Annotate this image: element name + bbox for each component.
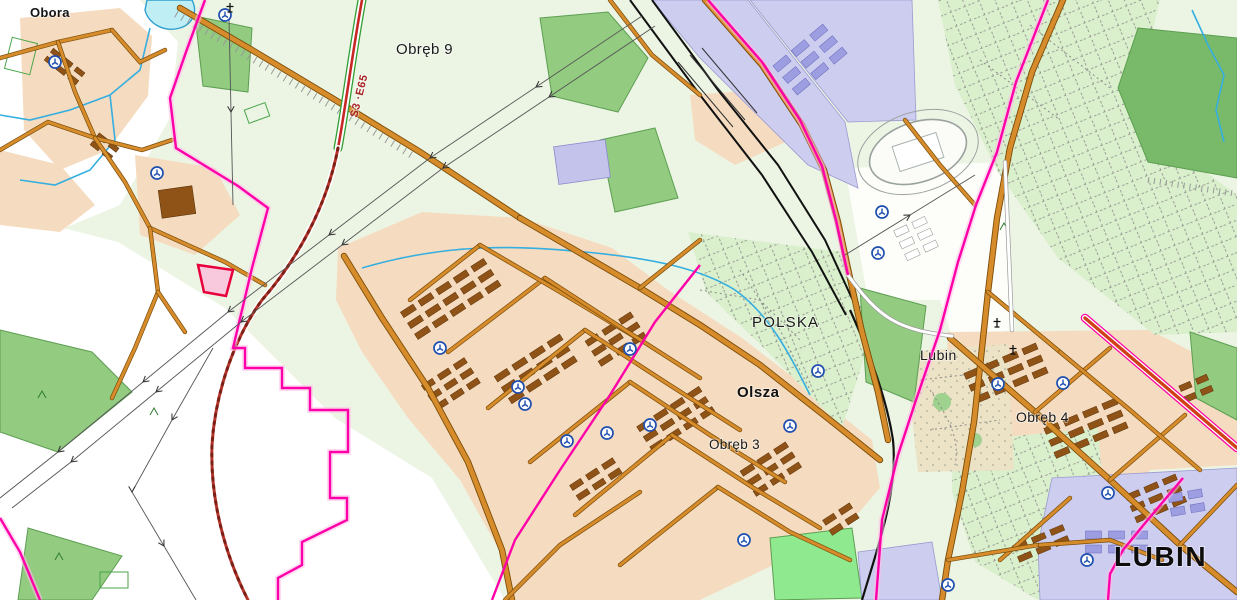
monument-symbol-icon [812, 365, 824, 377]
monument-symbol-icon [992, 378, 1004, 390]
map-label-obreb-3: Obręb 3 [709, 437, 760, 452]
field-bright-green [770, 528, 862, 600]
monument-symbol-icon [1081, 554, 1093, 566]
monument-symbol-icon [601, 427, 613, 439]
monument-symbol-icon [872, 247, 884, 259]
monument-symbol-icon [434, 342, 446, 354]
map-label-polska: POLSKA [752, 314, 819, 331]
monument-symbol-icon [1102, 487, 1114, 499]
terrain-layer [0, 0, 1237, 600]
monument-symbol-icon [1057, 377, 1069, 389]
monument-symbol-icon [151, 167, 163, 179]
building [1086, 531, 1102, 539]
map-label-obreb-4: Obręb 4 [1016, 409, 1069, 425]
map-label-lubin-district: Lubin [920, 347, 957, 363]
monument-symbol-icon [512, 381, 524, 393]
map-label-obreb-9: Obręb 9 [396, 41, 453, 58]
map-label-obora: Obora [30, 5, 70, 20]
building-large [158, 186, 196, 218]
monument-symbol-icon [876, 206, 888, 218]
building [1086, 545, 1102, 553]
monument-symbol-icon [738, 534, 750, 546]
building [1109, 531, 1125, 539]
monument-symbol-icon [942, 579, 954, 591]
monument-symbol-icon [624, 343, 636, 355]
map-label-olsza: Olsza [737, 384, 780, 401]
map-viewport[interactable]: OboraObręb 9S3 ·E65POLSKALubinOlszaObręb… [0, 0, 1237, 600]
forest-area [195, 16, 252, 92]
monument-symbol-icon [644, 419, 656, 431]
special-zone-outline [198, 265, 233, 296]
map-label-lubin-city: LUBIN [1114, 541, 1207, 572]
monument-symbol-icon [519, 398, 531, 410]
monument-symbol-icon [561, 435, 573, 447]
map-canvas[interactable]: OboraObręb 9S3 ·E65POLSKALubinOlszaObręb… [0, 0, 1237, 600]
monument-symbol-icon [219, 9, 231, 21]
monument-symbol-icon [784, 420, 796, 432]
monument-symbol-icon [49, 56, 61, 68]
industrial-hall [554, 140, 611, 185]
